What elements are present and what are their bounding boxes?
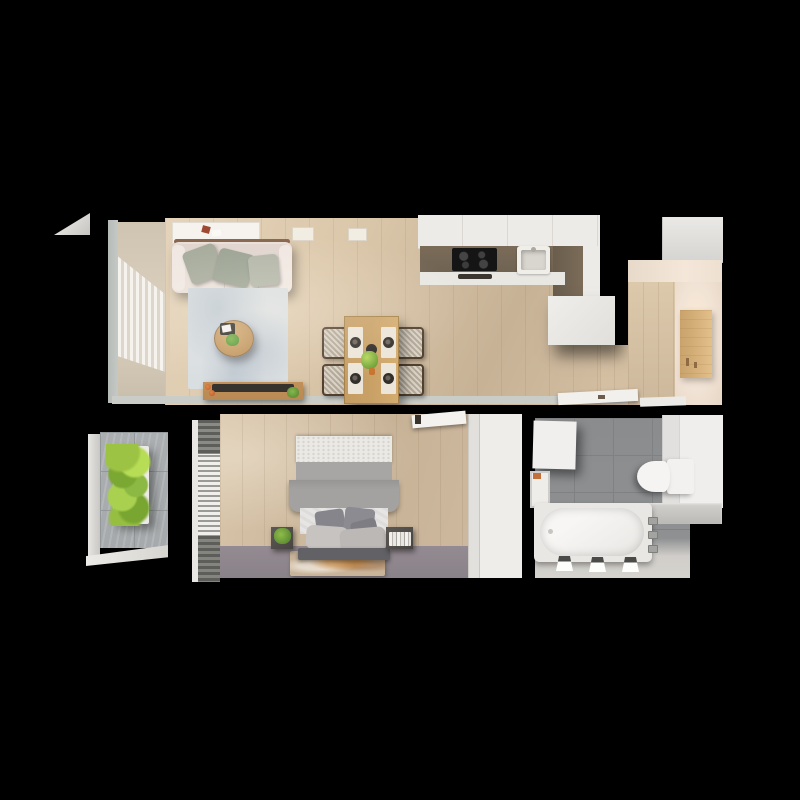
ceiling-tile (292, 227, 314, 241)
nightstand-plant (274, 528, 291, 544)
living-room-wall-left (108, 220, 118, 403)
bed-foot-blanket (296, 436, 392, 464)
hall-wardrobe-cabinet (662, 217, 723, 263)
door-threshold (640, 396, 686, 407)
hall-wall-band (628, 260, 722, 284)
floor-plan-render (0, 0, 800, 800)
throw-pillow (247, 254, 280, 288)
hall-wood-floor (628, 282, 675, 405)
sofa-armrest-right (279, 245, 292, 291)
window-curtains (118, 222, 165, 402)
bathtub-drain (548, 529, 553, 534)
bowl (350, 373, 361, 384)
dining-chair (396, 364, 424, 396)
bowl (350, 337, 361, 348)
tub-faucet-knob (648, 531, 658, 539)
dining-chair (396, 327, 424, 359)
niche-accent-item (533, 473, 541, 479)
balcony-wall-left (88, 434, 100, 562)
toilet-tank (667, 459, 694, 494)
candle-decor (205, 384, 211, 390)
bedroom-window-blinds (198, 420, 220, 582)
ceiling-decor-white (212, 229, 222, 236)
sofa (172, 237, 292, 293)
ceiling-tile (348, 228, 367, 241)
table-plant (361, 351, 378, 369)
cooktop (452, 248, 497, 271)
nightstand-books (389, 532, 411, 546)
candle-decor (209, 390, 215, 396)
bathtub-basin (540, 508, 644, 556)
entry-door-handle (686, 358, 689, 366)
interior-door-handle (598, 395, 605, 399)
entry-door-handle (694, 362, 697, 368)
coffee-table-plant (226, 334, 239, 346)
bowl (383, 337, 394, 348)
utensil-rail (458, 274, 492, 279)
tub-faucet-knob (648, 517, 658, 525)
kitchen-counter-top-run (418, 215, 600, 249)
bowl (383, 373, 394, 384)
media-bench-top (212, 384, 294, 392)
kitchen-island-cabinet (548, 296, 615, 345)
tub-faucet-knob (648, 545, 658, 553)
bench-plant (287, 387, 299, 398)
double-bed (294, 436, 394, 560)
sink-basin (521, 250, 546, 270)
bathroom-vanity (532, 420, 576, 469)
bed-headboard (298, 548, 390, 560)
table-decor (369, 368, 375, 375)
kitchen-counter-right-run (583, 246, 600, 303)
bedroom-wardrobe (468, 414, 522, 578)
bedroom-door-handle (415, 415, 421, 424)
exterior-wall-fragment (54, 213, 90, 235)
sink-faucet (531, 247, 536, 252)
toilet-bowl (637, 461, 670, 492)
sofa-armrest-left (172, 245, 185, 291)
vertical-garden-plant (106, 444, 154, 526)
